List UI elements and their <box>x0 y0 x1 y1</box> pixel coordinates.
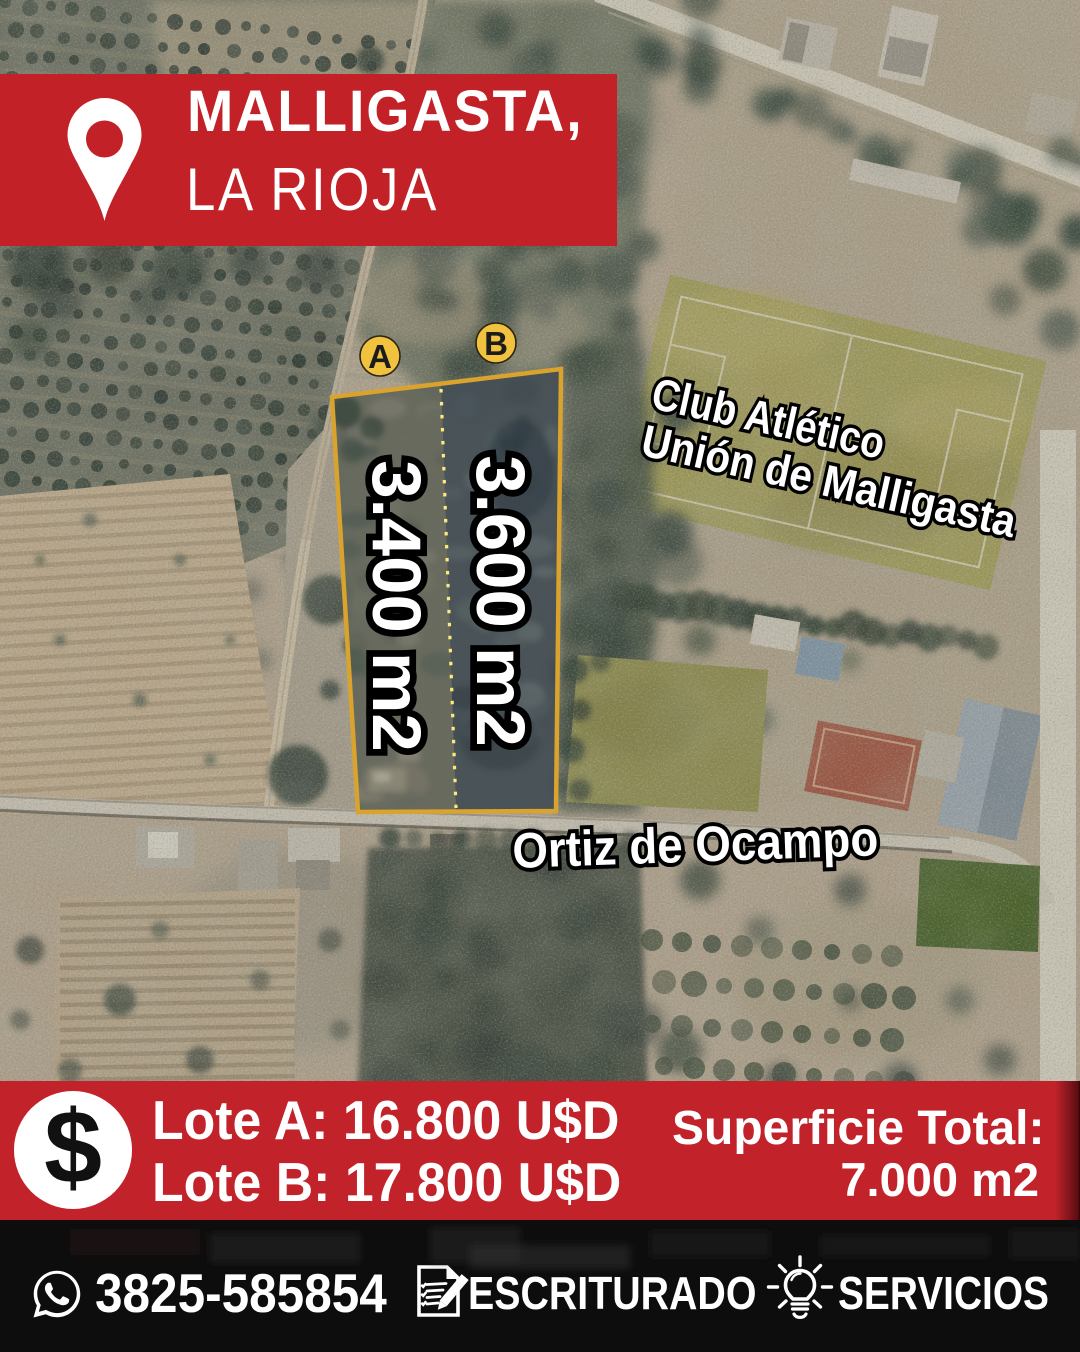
svg-text:B: B <box>484 325 508 362</box>
svg-text:A: A <box>368 338 392 375</box>
svg-text:3.600 m2: 3.600 m2 <box>462 455 539 747</box>
svg-text:3.400 m2: 3.400 m2 <box>358 460 435 752</box>
